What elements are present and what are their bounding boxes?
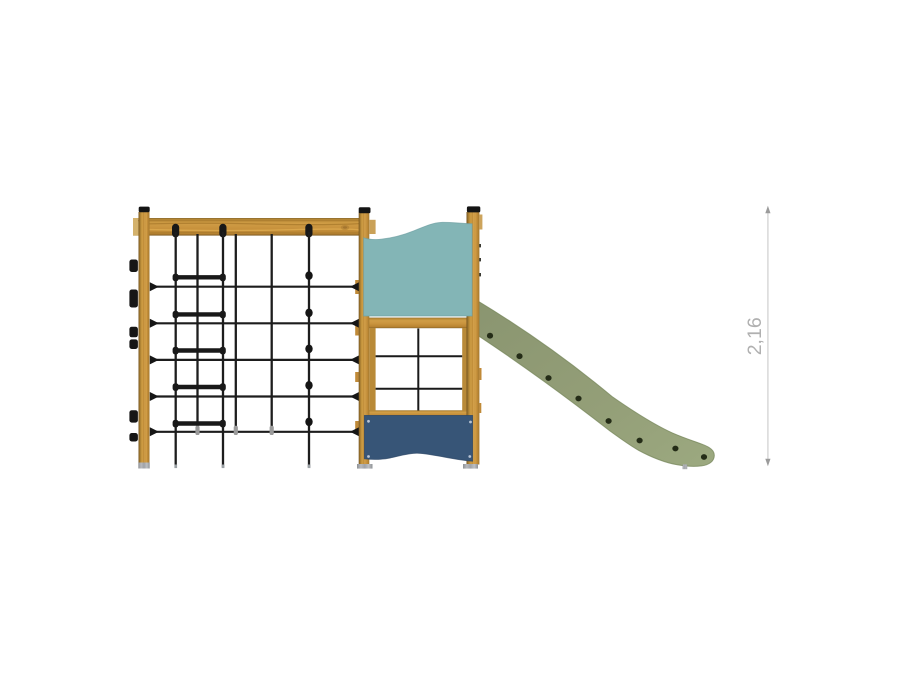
svg-text:2,16: 2,16 [744,317,766,355]
